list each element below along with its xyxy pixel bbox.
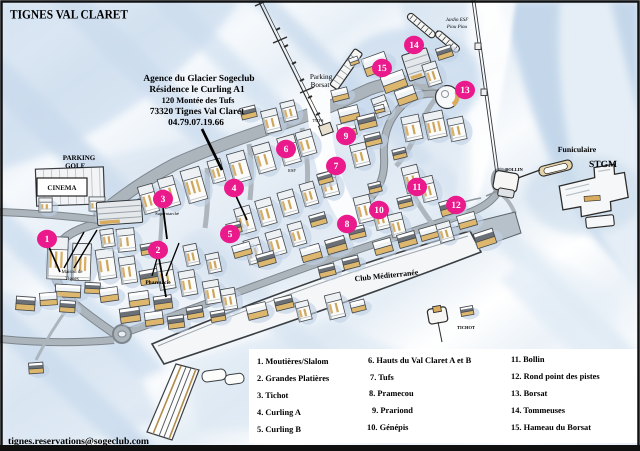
svg-text:11. Bollin: 11. Bollin bbox=[511, 355, 545, 364]
svg-text:6. Hauts du Val Claret A et B: 6. Hauts du Val Claret A et B bbox=[368, 356, 472, 365]
svg-text:15: 15 bbox=[377, 64, 387, 74]
svg-text:13. Borsat: 13. Borsat bbox=[511, 389, 548, 398]
svg-text:9. Prariond: 9. Prariond bbox=[372, 406, 413, 415]
svg-text:PARKING: PARKING bbox=[63, 154, 96, 162]
svg-text:10. Génépis: 10. Génépis bbox=[367, 423, 409, 432]
svg-text:8: 8 bbox=[345, 220, 350, 230]
svg-text:14. Tommeuses: 14. Tommeuses bbox=[511, 406, 566, 415]
svg-text:TIGNES VAL CLARET: TIGNES VAL CLARET bbox=[10, 8, 128, 22]
svg-text:Résidence le Curling A1: Résidence le Curling A1 bbox=[149, 85, 245, 95]
svg-text:6: 6 bbox=[284, 145, 289, 155]
svg-text:12: 12 bbox=[451, 201, 461, 211]
svg-text:STGM: STGM bbox=[589, 160, 617, 170]
svg-text:14: 14 bbox=[409, 41, 419, 51]
svg-text:3: 3 bbox=[161, 195, 166, 205]
svg-text:7. Tufs: 7. Tufs bbox=[370, 373, 394, 382]
svg-text:11: 11 bbox=[413, 183, 422, 193]
svg-text:13: 13 bbox=[460, 86, 470, 96]
svg-text:Parking: Parking bbox=[310, 73, 333, 81]
svg-text:TICHOT: TICHOT bbox=[457, 325, 475, 330]
svg-text:120 Montée des Tufs: 120 Montée des Tufs bbox=[162, 96, 236, 105]
svg-text:2. Grandes Platières: 2. Grandes Platières bbox=[257, 374, 330, 383]
svg-text:1: 1 bbox=[45, 235, 50, 245]
svg-text:8. Pramecou: 8. Pramecou bbox=[369, 389, 414, 398]
svg-text:10: 10 bbox=[374, 206, 384, 216]
svg-text:Pharmacie: Pharmacie bbox=[145, 280, 171, 286]
svg-text:BOLLIN: BOLLIN bbox=[505, 167, 523, 172]
svg-text:4. Curling A: 4. Curling A bbox=[257, 408, 301, 417]
svg-text:2: 2 bbox=[156, 246, 161, 256]
svg-text:Piou Piou: Piou Piou bbox=[446, 24, 468, 30]
svg-text:3. Tichot: 3. Tichot bbox=[257, 391, 289, 400]
svg-text:5. Curling B: 5. Curling B bbox=[257, 425, 301, 434]
svg-text:Agence du Glacier Sogeclub: Agence du Glacier Sogeclub bbox=[143, 74, 254, 84]
svg-text:1. Moutières/Slalom: 1. Moutières/Slalom bbox=[257, 357, 329, 366]
svg-text:9: 9 bbox=[344, 132, 349, 142]
svg-text:TUFS: TUFS bbox=[312, 118, 324, 123]
svg-text:Borsat: Borsat bbox=[311, 81, 330, 89]
svg-text:GOLF: GOLF bbox=[65, 162, 85, 170]
svg-text:4: 4 bbox=[232, 184, 237, 194]
svg-text:ESF: ESF bbox=[288, 168, 296, 173]
svg-text:7: 7 bbox=[334, 162, 339, 172]
svg-text:Tignes: Tignes bbox=[65, 276, 78, 282]
svg-text:73320 Tignes Val Claret: 73320 Tignes Val Claret bbox=[150, 107, 245, 117]
svg-text:Funiculaire: Funiculaire bbox=[558, 145, 597, 154]
svg-text:5: 5 bbox=[228, 230, 233, 240]
svg-text:CINEMA: CINEMA bbox=[47, 184, 76, 192]
svg-text:04.79.07.19.66: 04.79.07.19.66 bbox=[168, 118, 224, 128]
svg-text:15. Hameau du Borsat: 15. Hameau du Borsat bbox=[511, 423, 591, 432]
svg-text:12. Rond point des pistes: 12. Rond point des pistes bbox=[511, 372, 600, 381]
svg-text:Maison de: Maison de bbox=[62, 269, 84, 275]
svg-text:Supermarché: Supermarché bbox=[155, 211, 179, 216]
svg-text:Jardin ESF: Jardin ESF bbox=[446, 17, 470, 23]
